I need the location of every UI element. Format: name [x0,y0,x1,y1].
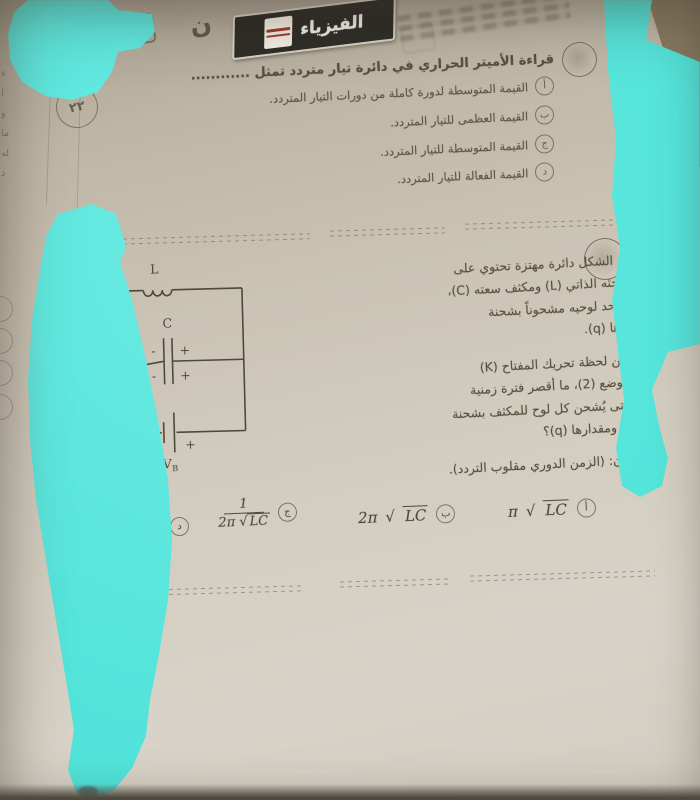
choice-coefficient: 2π [358,508,378,527]
choice-letter-circle: أ [576,498,596,518]
option-letter-circle: د [535,162,555,182]
q2-paragraph-2: بدءاً من لحظة تحريك المفتاح (K) إلى الوض… [321,348,655,454]
edition-box [264,16,292,50]
option-letter-circle: ب [535,105,555,125]
capacitor-minus-bottom: - [152,368,157,383]
wire [118,433,162,434]
radical-sign: √ [385,507,395,525]
choice-coefficient: π [508,502,519,520]
q2-choice-a: π √LC أ [508,498,597,521]
battery-plate-short [164,422,165,443]
radicand: LC [403,505,429,525]
switch-label: K [124,333,134,348]
blurred-stamp-box [400,24,435,54]
wire [172,359,243,361]
lc-circuit-figure: L C K - - + + - + V B [95,254,269,474]
choice-letter-circle: د [170,517,190,537]
capacitor-minus-top: - [151,343,156,358]
photo-bottom-edge [0,784,700,800]
wire [116,386,117,434]
choice-letter-circle: ب [436,504,456,524]
battery-plus: + [185,437,196,452]
series-fragment-text: المذ [99,17,114,28]
option-letter-circle: ج [535,134,555,154]
fraction-numerator: 1 [223,496,264,515]
q2-text-column: يوضح الشكل دائرة مهتزة تحتوي على ملف حثه… [315,248,657,498]
q2-paragraph-1: يوضح الشكل دائرة مهتزة تحتوي على ملف حثه… [315,248,649,354]
q2-choice-c: 1 2π √LC ج [217,494,297,532]
switch-contact-upper [111,347,116,352]
battery-plate-long [174,412,175,452]
wire [112,291,143,292]
radicand: LC [247,513,270,530]
wire [176,431,245,433]
inductor-label: L [150,261,159,276]
capacitor-plus-bottom: + [180,368,191,383]
choice-letter-circle: ج [277,502,297,522]
series-number-fragment: ٢٨ [104,29,114,39]
publisher-emblem-icon [127,12,158,50]
radicand: LC [543,499,569,519]
exam-photo: المذ ٢٨ ن الفيزياء قراءة الأميتر الحراري… [0,0,700,800]
capacitor-plate-left [163,338,164,384]
radical-sign: √ [525,501,535,519]
wire [112,291,113,348]
battery-minus: - [152,444,157,459]
noon-logo: ن [188,9,214,41]
previous-page-edge-fragments: ة ا و ما له د [1,64,15,184]
fraction-denominator: 2π √LC [218,513,271,532]
capacitor-label: C [162,316,172,331]
q2-paragraph-3: علماً بأن: (الزمن الدوري مقلوب التردد). [326,448,657,487]
capacitor-plate-right [172,338,173,384]
denominator-coefficient: 2π [218,515,235,531]
option-text: القيمة الفعالة للتيار المتردد. [396,166,528,186]
option-text: القيمة العظمى للتيار المتردد. [390,109,529,129]
subject-title: الفيزياء [300,12,363,40]
q2-choice-d: π LC د [126,517,190,539]
wire [172,288,242,290]
capacitor-plus-top: + [179,342,190,357]
choice-formula: π LC [126,518,163,538]
battery-label-sub: B [172,463,178,473]
option-letter-circle: أ [535,76,555,96]
choice-fraction: 1 2π √LC [217,495,270,532]
switch-arm [116,361,165,383]
inductor-coil [143,290,171,297]
